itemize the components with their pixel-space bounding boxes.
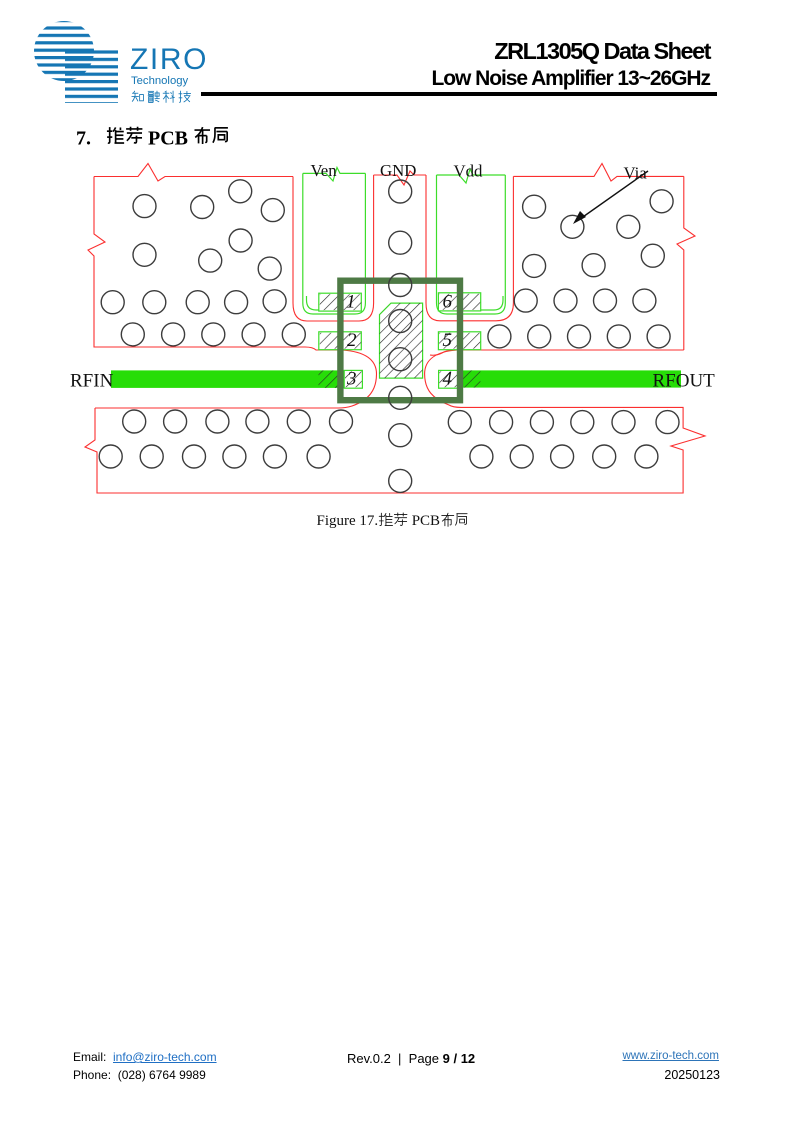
- svg-text:PCB: PCB: [412, 513, 440, 529]
- svg-text:1: 1: [346, 292, 356, 313]
- svg-text:Ven: Ven: [311, 161, 338, 180]
- svg-text:4: 4: [443, 369, 453, 390]
- svg-text:RFIN: RFIN: [70, 371, 114, 392]
- svg-text:Figure 17.: Figure 17.: [317, 513, 379, 529]
- svg-text:3: 3: [346, 369, 357, 390]
- svg-text:Vdd: Vdd: [454, 162, 484, 181]
- svg-text:5: 5: [443, 330, 453, 351]
- svg-text:RFOUT: RFOUT: [653, 371, 716, 392]
- svg-text:2: 2: [347, 330, 357, 351]
- svg-text:6: 6: [443, 291, 453, 312]
- svg-text:GND: GND: [380, 161, 416, 180]
